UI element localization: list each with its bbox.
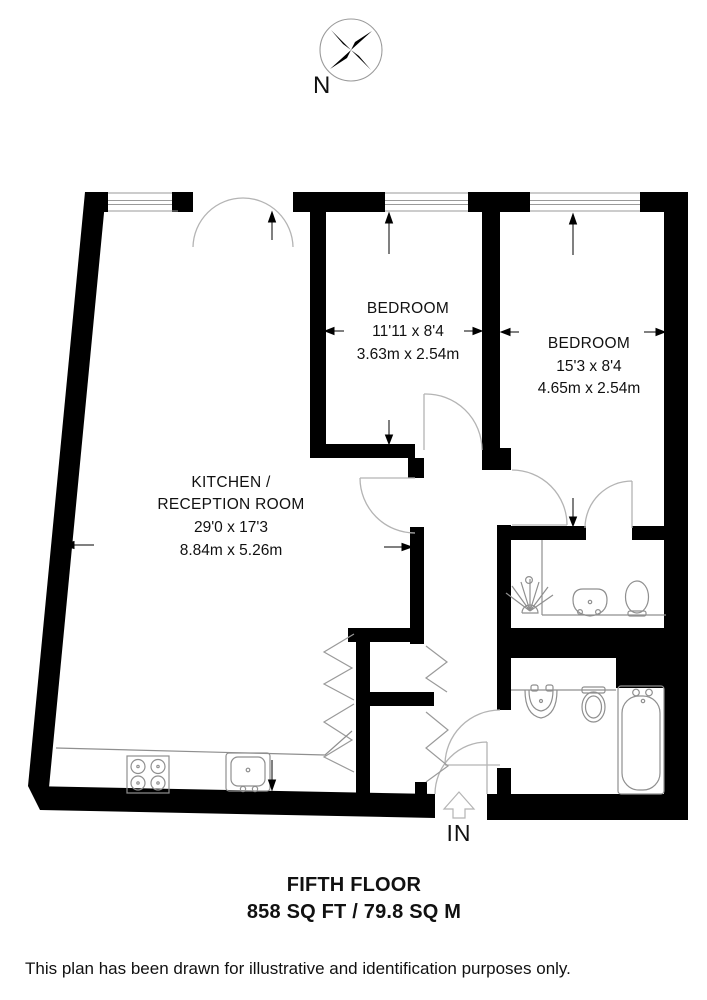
- kitchen-sink: [226, 753, 270, 792]
- wall-bathroom-corner-block: [616, 628, 668, 688]
- bifold-kitchen-upper: [324, 634, 354, 700]
- wall-shower-bath-divider: [511, 628, 618, 658]
- disclaimer-text: This plan has been drawn for illustrativ…: [25, 959, 571, 978]
- wall-bottom-right: [487, 794, 688, 820]
- kitchen-name-line2: RECEPTION ROOM: [157, 496, 304, 513]
- wall-closet-mid: [370, 692, 434, 706]
- bedroom1-name: BEDROOM: [367, 300, 449, 317]
- wall-hall-east-lower: [497, 768, 511, 798]
- hob: [127, 756, 169, 793]
- entrance-in-label: IN: [447, 820, 472, 846]
- wall-bedroom1-west: [310, 212, 326, 458]
- kitchen-counter: [56, 731, 352, 755]
- wall-bedroom2-south-left: [511, 526, 586, 540]
- entrance-door-swing: [435, 742, 487, 794]
- window-kitchen: [108, 191, 172, 213]
- compass-north-label: N: [313, 72, 330, 99]
- shower: [506, 540, 666, 615]
- floorplan-drawing: N: [0, 0, 707, 1000]
- kitchen-metric: 8.84m x 5.26m: [180, 542, 283, 559]
- footer-floor-label: FIFTH FLOOR: [287, 874, 422, 896]
- bifold-hall-lower: [426, 712, 448, 782]
- footer: FIFTH FLOOR 858 SQ FT / 79.8 SQ M: [247, 874, 461, 923]
- bedroom2-door-swing: [512, 470, 567, 525]
- bedroom2-label: BEDROOM 15'3 x 8'4 4.65m x 2.54m: [538, 335, 641, 397]
- entrance-marker: IN: [444, 792, 474, 846]
- compass-rose: N: [313, 19, 382, 99]
- wall-left-slanted: [28, 192, 106, 798]
- wall-bedroom2-south-right: [632, 526, 666, 540]
- opening-french-doors: [193, 191, 293, 213]
- ensuite-basin: [573, 589, 607, 616]
- window-bedroom1: [385, 191, 468, 213]
- bedroom1-metric: 3.63m x 2.54m: [357, 346, 460, 363]
- wall-bedroom1-south: [310, 444, 415, 458]
- kitchen-imperial: 29'0 x 17'3: [194, 519, 268, 536]
- closet-bifold-doors: [324, 634, 448, 782]
- bedroom2-metric: 4.65m x 2.54m: [538, 380, 641, 397]
- bedroom2-name: BEDROOM: [548, 335, 630, 352]
- entrance-arrow-icon: [444, 792, 474, 818]
- wall-hall-east-upper: [497, 525, 511, 710]
- kitchen-name-line1: KITCHEN /: [191, 474, 271, 491]
- kitchen-hall-door-swing: [360, 478, 415, 533]
- window-bedroom2: [530, 191, 640, 213]
- kitchen-label: KITCHEN / RECEPTION ROOM 29'0 x 17'3 8.8…: [157, 474, 304, 559]
- ensuite-toilet: [626, 581, 649, 616]
- wall-closet-bottom-stub: [415, 782, 427, 798]
- footer-area-label: 858 SQ FT / 79.8 SQ M: [247, 901, 461, 923]
- bedroom1-label: BEDROOM 11'11 x 8'4 3.63m x 2.54m: [357, 300, 460, 363]
- compass-star-icon: [330, 30, 372, 70]
- bathtub: [618, 686, 664, 794]
- bathroom-toilet: [582, 687, 605, 722]
- bedroom1-door-swing: [424, 394, 482, 450]
- wall-stub-kitchen-door: [408, 458, 424, 478]
- bifold-hall-upper: [426, 646, 447, 692]
- wall-closet-divider: [356, 628, 370, 798]
- shower-room-door-swing: [585, 481, 632, 528]
- bedroom1-imperial: 11'11 x 8'4: [372, 323, 444, 340]
- wall-hall-west: [410, 527, 424, 644]
- walls: [28, 192, 688, 820]
- room-labels: BEDROOM 11'11 x 8'4 3.63m x 2.54m BEDROO…: [157, 300, 640, 559]
- bathroom-door-swing: [445, 710, 500, 765]
- bifold-kitchen-lower: [324, 704, 354, 772]
- wall-bedroom2-door-stub: [482, 448, 511, 470]
- wall-right: [664, 192, 688, 820]
- bedroom2-imperial: 15'3 x 8'4: [556, 358, 622, 375]
- wall-bedroom-divider: [482, 212, 500, 448]
- floorplan-page: N: [0, 0, 707, 1000]
